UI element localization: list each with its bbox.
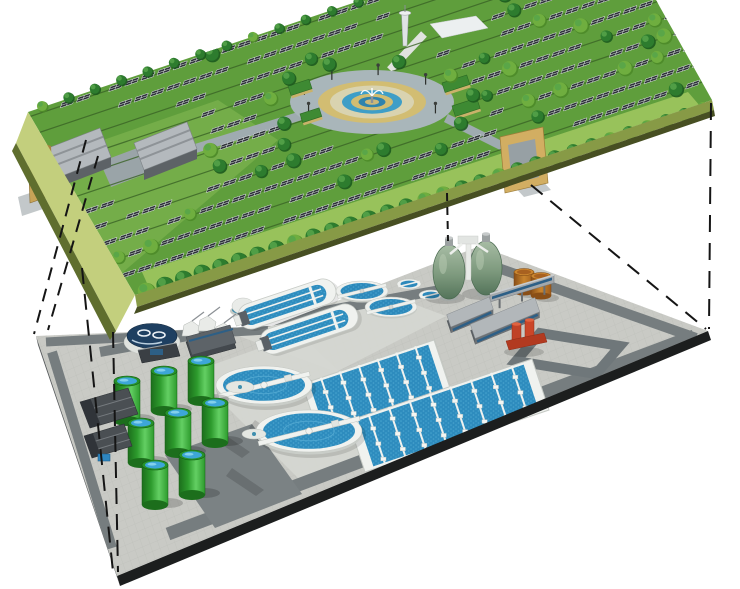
tree [679,2,695,18]
solar-panel [260,12,274,21]
projection-line [709,103,711,329]
equipment-pad [242,429,266,439]
solar-panel [708,53,722,62]
tree [66,74,82,90]
solar-panel [674,27,688,36]
solar-panel [35,88,49,97]
cutaway-illustration [0,0,740,589]
solar-panel [244,18,258,27]
solar-panel [132,56,146,65]
tree [689,18,705,34]
gravity-thickener [397,279,421,289]
tree [702,73,714,85]
solar-panel [51,83,65,92]
solar-panel [309,0,323,5]
tree [0,101,1,116]
solar-panel [718,69,732,78]
solar-panel [683,43,697,52]
illustration-canvas [0,0,740,589]
solar-panel [180,39,194,48]
solar-panel [99,67,113,76]
equipment-pad [226,381,254,393]
solar-panel [293,2,307,11]
projection-line [447,193,448,241]
solar-panel [115,61,129,70]
solar-panel [148,50,162,59]
tree [671,0,685,1]
solar-panel [699,37,713,46]
solar-panel [19,94,33,103]
solar-panel [196,34,210,43]
solar-panel [664,11,678,20]
tree [83,69,97,83]
blue-pallet [98,454,110,461]
small-clarifier [365,297,417,319]
circular-clarifier [256,410,366,458]
solar-panel [692,59,706,68]
solar-panel [277,7,291,16]
tree [227,20,242,35]
solar-panel [0,120,10,129]
solar-panel [3,99,17,108]
